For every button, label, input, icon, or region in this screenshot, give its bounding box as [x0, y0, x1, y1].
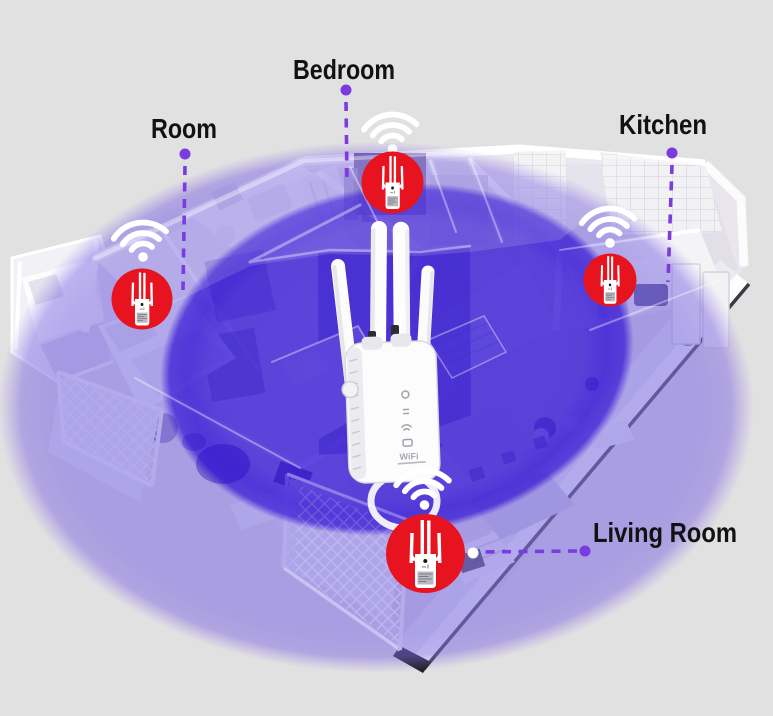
svg-text:Room: Room: [151, 113, 217, 144]
svg-text:Living Room: Living Room: [593, 517, 737, 548]
svg-text:Kitchen: Kitchen: [619, 109, 707, 140]
svg-text:Bedroom: Bedroom: [293, 54, 395, 85]
svg-text:WiFi: WiFi: [399, 451, 418, 462]
